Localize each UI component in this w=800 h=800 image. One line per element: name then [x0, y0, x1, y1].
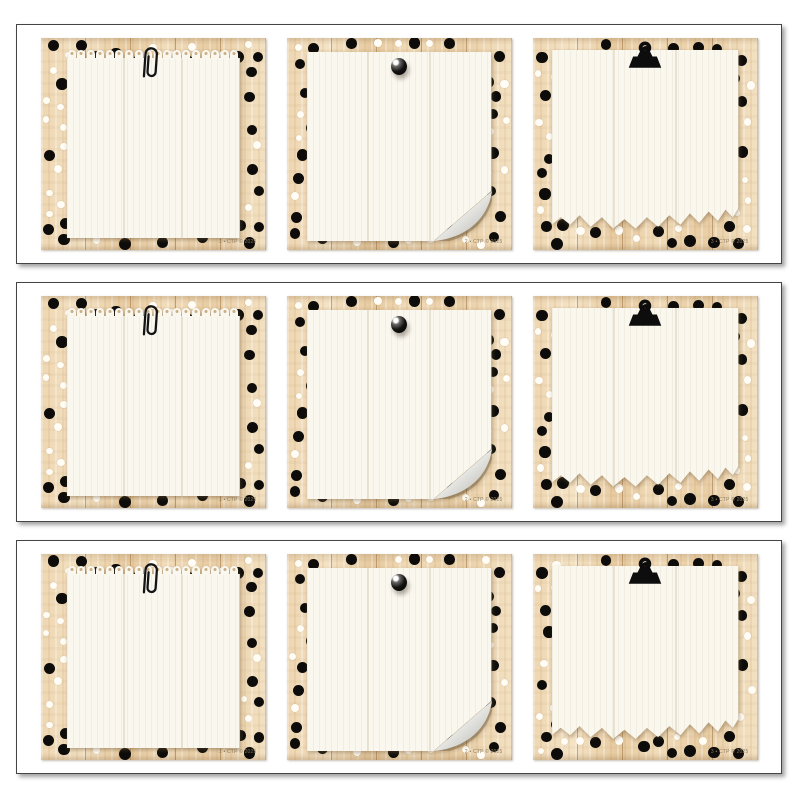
perforation-bump: [230, 308, 238, 317]
black-dot: [254, 444, 264, 454]
perforation-bump: [221, 50, 229, 59]
white-dot: [503, 375, 511, 383]
black-dot: [444, 554, 455, 565]
black-dot: [48, 555, 59, 566]
white-dot: [297, 369, 304, 376]
white-dot: [245, 204, 252, 211]
product-code: 1 • CTP © 2025: [219, 239, 257, 245]
perforation-bump: [115, 566, 123, 575]
black-dot: [737, 659, 749, 671]
black-dot: [409, 296, 421, 307]
black-dot: [295, 59, 305, 69]
black-dot: [247, 125, 257, 135]
note-paper: [307, 568, 492, 751]
black-dot: [157, 237, 168, 248]
black-dot: [537, 168, 547, 178]
perforation-bump: [163, 308, 171, 317]
white-dot: [501, 679, 508, 686]
perforation-bump: [77, 566, 85, 575]
black-dot: [295, 574, 305, 584]
white-dot: [500, 338, 509, 347]
white-dot: [43, 374, 50, 381]
product-code: 3 • CTP © 2025: [711, 239, 749, 245]
white-dot: [43, 355, 50, 362]
black-dot: [254, 732, 265, 743]
product-code: 1 • CTP © 2025: [219, 749, 257, 755]
black-dot: [541, 732, 552, 743]
perforation-bump: [68, 308, 76, 317]
white-dot: [46, 190, 53, 197]
paper-clip-icon: [134, 554, 163, 602]
black-dot: [247, 422, 258, 433]
perforation-bump: [68, 50, 76, 59]
white-dot: [535, 585, 542, 592]
black-dot: [247, 676, 258, 687]
white-dot: [291, 704, 299, 712]
black-dot: [44, 663, 55, 674]
white-dot: [742, 435, 749, 442]
white-dot: [245, 41, 252, 48]
black-dot: [48, 298, 59, 309]
white-dot: [743, 483, 751, 491]
white-dot: [54, 677, 62, 685]
perforation-bump: [182, 308, 190, 317]
white-dot: [297, 111, 304, 118]
product-sheet: 1 • CTP © 2025 2 • CTP © 2025 3 • CTP © …: [0, 0, 800, 800]
perforation-bump: [87, 308, 95, 317]
note-card-perforated-notepad: 1 • CTP © 2025: [41, 296, 266, 508]
white-dot: [43, 630, 50, 637]
black-dot: [444, 38, 455, 49]
black-dot: [737, 146, 749, 158]
black-dot: [246, 325, 257, 336]
white-dot: [295, 302, 302, 309]
product-code: 2 • CTP © 2025: [465, 749, 503, 755]
white-dot: [46, 469, 53, 476]
sticker-strip: 1 • CTP © 2025 2 • CTP © 2025 3 • CTP © …: [16, 24, 782, 264]
white-dot: [426, 40, 434, 48]
white-dot: [503, 117, 511, 125]
perforation-bump: [211, 566, 219, 575]
page-curl: [428, 443, 492, 499]
black-dot: [539, 188, 550, 199]
page-curl: [428, 695, 492, 751]
white-dot: [54, 423, 62, 431]
perforation-bump: [192, 566, 200, 575]
black-dot: [540, 90, 551, 101]
black-dot: [494, 51, 505, 62]
note-card-curled-corner: 2 • CTP © 2025: [287, 296, 512, 508]
black-dot: [44, 408, 55, 419]
white-dot: [43, 612, 50, 619]
black-dot: [119, 238, 131, 250]
black-dot: [244, 606, 255, 617]
black-dot: [254, 697, 264, 707]
white-dot: [296, 135, 303, 142]
perforation-bump: [163, 50, 171, 59]
black-dot: [295, 317, 305, 327]
white-dot: [374, 297, 382, 305]
perforation-bump: [125, 50, 133, 59]
black-dot: [293, 431, 304, 442]
white-dot: [538, 748, 545, 755]
perforation-bump: [192, 50, 200, 59]
white-dot: [289, 653, 296, 660]
note-card-torn-bottom: 3 • CTP © 2025: [533, 38, 758, 250]
black-dot: [253, 568, 264, 579]
perforation-bump: [230, 566, 238, 575]
white-dot: [482, 556, 490, 564]
binder-clip-icon: [625, 556, 665, 594]
strip-inner: 1 • CTP © 2025 2 • CTP © 2025 3 • CTP © …: [17, 541, 781, 773]
black-dot: [491, 349, 502, 360]
note-card-perforated-notepad: 1 • CTP © 2025: [41, 38, 266, 250]
white-dot: [57, 362, 64, 369]
black-dot: [253, 52, 264, 63]
black-dot: [244, 350, 255, 361]
perforation-bump: [106, 308, 114, 317]
white-dot: [57, 459, 65, 467]
white-dot: [395, 298, 402, 305]
sticker-strip: 1 • CTP © 2025 2 • CTP © 2025 3 • CTP © …: [16, 282, 782, 522]
white-dot: [744, 376, 752, 384]
black-dot: [409, 38, 421, 49]
white-dot: [535, 377, 543, 385]
note-card-curled-corner: 2 • CTP © 2025: [287, 554, 512, 760]
sticker-strip: 1 • CTP © 2025 2 • CTP © 2025 3 • CTP © …: [16, 540, 782, 774]
perforation-bump: [202, 308, 210, 317]
black-dot: [290, 228, 300, 238]
white-dot: [291, 192, 299, 200]
perforation-bump: [96, 50, 104, 59]
perforation-bump: [173, 50, 181, 59]
white-dot: [253, 654, 261, 662]
black-dot: [540, 605, 551, 616]
black-dot: [43, 482, 54, 493]
black-dot: [540, 348, 551, 359]
black-dot: [541, 221, 552, 232]
black-dot: [246, 582, 257, 593]
perforation-bump: [230, 50, 238, 59]
black-dot: [346, 554, 357, 565]
push-pin-icon: [391, 316, 407, 333]
black-dot: [551, 748, 563, 760]
black-dot: [44, 150, 55, 161]
white-dot: [50, 325, 57, 332]
black-dot: [291, 212, 302, 223]
white-dot: [748, 686, 756, 694]
white-dot: [742, 177, 749, 184]
black-dot: [293, 685, 304, 696]
black-dot: [346, 296, 357, 307]
white-dot: [535, 119, 543, 127]
white-dot: [536, 713, 544, 721]
white-dot: [535, 70, 542, 77]
black-dot: [601, 39, 611, 49]
black-dot: [536, 310, 548, 322]
white-dot: [296, 393, 303, 400]
paper-clip-icon: [134, 296, 163, 344]
black-dot: [491, 606, 502, 617]
note-paper: [552, 50, 739, 240]
black-dot: [601, 555, 611, 565]
black-dot: [537, 426, 547, 436]
black-dot: [254, 480, 265, 491]
perforation-bump: [96, 308, 104, 317]
white-dot: [46, 211, 53, 218]
black-dot: [601, 297, 611, 307]
note-card-torn-bottom: 3 • CTP © 2025: [533, 554, 758, 760]
black-dot: [737, 404, 749, 416]
product-code: 2 • CTP © 2025: [465, 497, 503, 503]
black-dot: [291, 722, 302, 733]
white-dot: [46, 701, 53, 708]
white-dot: [395, 40, 402, 47]
perforation-bump: [182, 50, 190, 59]
perforation-bump: [173, 308, 181, 317]
product-code: 3 • CTP © 2025: [711, 497, 749, 503]
perforation-bump: [202, 566, 210, 575]
white-dot: [57, 618, 64, 625]
perforation-bump: [125, 566, 133, 575]
perforation-bump: [68, 566, 76, 575]
white-dot: [540, 660, 548, 668]
black-dot: [244, 92, 255, 103]
white-dot: [245, 715, 252, 722]
black-dot: [536, 52, 548, 64]
perforation-bump: [115, 50, 123, 59]
white-dot: [57, 104, 64, 111]
black-dot: [43, 735, 54, 746]
black-dot: [247, 638, 257, 648]
product-code: 2 • CTP © 2025: [465, 239, 503, 245]
perforation-bump: [202, 50, 210, 59]
black-dot: [494, 567, 505, 578]
white-dot: [743, 225, 751, 233]
white-dot: [57, 201, 65, 209]
black-dot: [290, 486, 300, 496]
white-dot: [747, 339, 756, 348]
white-dot: [374, 39, 382, 47]
black-dot: [291, 470, 302, 481]
black-dot: [290, 738, 300, 748]
black-dot: [495, 722, 506, 733]
perforation-bump: [221, 566, 229, 575]
white-dot: [537, 206, 545, 214]
black-dot: [157, 747, 168, 758]
white-dot: [291, 450, 299, 458]
black-dot: [444, 296, 455, 307]
note-card-curled-corner: 2 • CTP © 2025: [287, 38, 512, 250]
black-dot: [346, 38, 357, 49]
white-dot: [245, 557, 252, 564]
white-dot: [295, 560, 302, 567]
black-dot: [491, 91, 502, 102]
white-dot: [426, 298, 434, 306]
white-dot: [43, 97, 50, 104]
note-card-torn-bottom: 3 • CTP © 2025: [533, 296, 758, 508]
black-dot: [537, 680, 547, 690]
perforation-bump: [221, 308, 229, 317]
white-dot: [43, 116, 50, 123]
black-dot: [247, 383, 257, 393]
perforation-bump: [125, 308, 133, 317]
white-dot: [54, 165, 62, 173]
perforation-bump: [115, 308, 123, 317]
perforation-bump: [77, 50, 85, 59]
black-dot: [409, 554, 421, 565]
perforation-bump: [211, 50, 219, 59]
push-pin-icon: [391, 58, 407, 75]
perforation-bump: [211, 308, 219, 317]
white-dot: [50, 67, 57, 74]
product-code: 3 • CTP © 2025: [711, 749, 749, 755]
black-dot: [551, 238, 563, 250]
white-dot: [46, 448, 53, 455]
white-dot: [535, 328, 542, 335]
white-dot: [501, 424, 508, 431]
black-dot: [254, 186, 264, 196]
black-dot: [293, 173, 304, 184]
white-dot: [253, 141, 261, 149]
black-dot: [119, 748, 131, 760]
perforation-bump: [87, 50, 95, 59]
page-curl: [428, 185, 492, 241]
black-dot: [246, 67, 257, 78]
white-dot: [426, 556, 434, 564]
perforation-bump: [182, 566, 190, 575]
white-dot: [245, 462, 252, 469]
black-dot: [495, 211, 506, 222]
white-dot: [295, 44, 302, 51]
note-card-perforated-notepad: 1 • CTP © 2025: [41, 554, 266, 760]
black-dot: [119, 496, 131, 508]
paper-surface: [552, 308, 739, 498]
black-dot: [247, 164, 258, 175]
white-dot: [744, 118, 752, 126]
black-dot: [157, 495, 168, 506]
white-dot: [50, 582, 57, 589]
perforation-bump: [106, 50, 114, 59]
black-dot: [254, 222, 265, 233]
product-code: 1 • CTP © 2025: [219, 497, 257, 503]
white-dot: [501, 166, 508, 173]
black-dot: [48, 40, 59, 51]
white-dot: [745, 197, 752, 204]
paper-clip-icon: [134, 38, 163, 86]
white-dot: [395, 556, 402, 563]
black-dot: [551, 496, 563, 508]
white-dot: [747, 81, 756, 90]
white-dot: [745, 455, 752, 462]
note-paper: [307, 310, 492, 499]
white-dot: [46, 722, 53, 729]
note-paper: [552, 308, 739, 498]
binder-clip-icon: [625, 40, 665, 78]
black-dot: [541, 479, 552, 490]
strip-inner: 1 • CTP © 2025 2 • CTP © 2025 3 • CTP © …: [17, 25, 781, 263]
white-dot: [537, 464, 545, 472]
white-dot: [744, 632, 752, 640]
paper-surface: [552, 50, 739, 240]
binder-clip-icon: [625, 298, 665, 336]
white-dot: [747, 596, 756, 605]
white-dot: [297, 625, 304, 632]
perforation-bump: [87, 566, 95, 575]
white-dot: [241, 696, 248, 703]
black-dot: [495, 469, 506, 480]
strip-inner: 1 • CTP © 2025 2 • CTP © 2025 3 • CTP © …: [17, 283, 781, 521]
white-dot: [253, 399, 261, 407]
perforation-bump: [192, 308, 200, 317]
black-dot: [536, 567, 548, 579]
note-paper: [307, 52, 492, 241]
perforation-bump: [106, 566, 114, 575]
black-dot: [539, 446, 550, 457]
perforation-bump: [163, 566, 171, 575]
white-dot: [500, 80, 509, 89]
white-dot: [245, 299, 252, 306]
black-dot: [43, 224, 54, 235]
perforation-bump: [77, 308, 85, 317]
black-dot: [494, 309, 505, 320]
push-pin-icon: [391, 574, 407, 591]
perforation-bump: [173, 566, 181, 575]
perforation-bump: [96, 566, 104, 575]
black-dot: [253, 310, 264, 321]
